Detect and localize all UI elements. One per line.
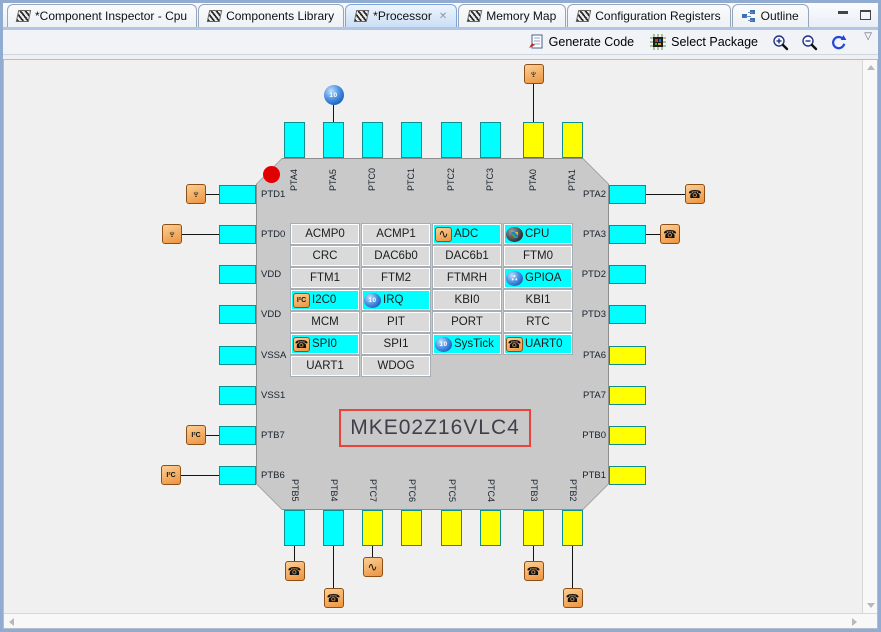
scroll-right-icon[interactable] — [852, 618, 857, 626]
tab-label: Memory Map — [486, 9, 556, 23]
component-icon — [207, 10, 223, 22]
component-icon — [16, 10, 32, 22]
uart-icon[interactable]: ☎ — [660, 224, 680, 244]
peripheral-acmp0[interactable]: ACMP0 — [291, 224, 359, 244]
pin-vdd-left[interactable] — [219, 265, 256, 284]
zoom-in-icon — [772, 34, 789, 51]
pin-label: PTA0 — [527, 161, 540, 191]
pin-wire — [182, 234, 219, 235]
pin-ptc5-bottom[interactable] — [441, 510, 462, 546]
pin-ptd2-right[interactable] — [609, 265, 646, 284]
pin-wire — [533, 84, 534, 122]
peripheral-label: UART0 — [525, 338, 563, 350]
vertical-scrollbar[interactable] — [862, 60, 877, 613]
peripheral-rtc[interactable]: RTC — [504, 312, 572, 332]
pin-ptb2-bottom[interactable] — [562, 510, 583, 546]
uart-icon: ☎ — [293, 337, 310, 352]
pin-ptd3-right[interactable] — [609, 305, 646, 324]
peripheral-kbi1[interactable]: KBI1 — [504, 290, 572, 310]
select-package-button[interactable]: Select Package — [647, 32, 761, 52]
peripheral-label: SysTick — [454, 338, 494, 350]
peripheral-spi1[interactable]: SPI1 — [362, 334, 430, 354]
peripheral-kbi0[interactable]: KBI0 — [433, 290, 501, 310]
tab-strip: *Component Inspector - CpuComponents Lib… — [7, 3, 826, 27]
peripheral-acmp1[interactable]: ACMP1 — [362, 224, 430, 244]
peripheral-mcm[interactable]: MCM — [291, 312, 359, 332]
peripheral-label: PIT — [387, 316, 405, 328]
component-icon — [576, 10, 592, 22]
pin-ptc2-top[interactable] — [441, 122, 462, 158]
pin-pta0-top[interactable] — [523, 122, 544, 158]
pin-ptb7-left[interactable] — [219, 426, 256, 445]
pin-vssa-left[interactable] — [219, 346, 256, 365]
scroll-up-icon[interactable] — [867, 65, 875, 70]
toolbar-overflow-chevron[interactable]: ▽ — [864, 32, 872, 42]
peripheral-label: SPI0 — [312, 338, 337, 350]
editor-tabbar: *Component Inspector - CpuComponents Lib… — [3, 3, 878, 30]
pin-label: PTC3 — [484, 161, 497, 191]
peripheral-ftm0[interactable]: FTM0 — [504, 246, 572, 266]
pin-label: PTA4 — [288, 161, 301, 191]
scroll-left-icon[interactable] — [9, 618, 14, 626]
processor-toolbar: Generate Code Select Package — [3, 30, 878, 55]
peripheral-adc[interactable]: ∿ADC — [433, 224, 501, 244]
gpio-icon[interactable]: ♆ — [186, 184, 206, 204]
diagram-view: MKE02Z16VLC4 PTA4PTA510PTC0PTC1PTC2PTC3P… — [3, 59, 878, 629]
pin-pta1-top[interactable] — [562, 122, 583, 158]
pin-label: PTB3 — [527, 479, 540, 509]
peripheral-label: WDOG — [377, 360, 414, 372]
peripheral-label: FTM0 — [523, 250, 553, 262]
pin-label: PTD1 — [261, 188, 307, 201]
peripheral-label: MCM — [311, 316, 338, 328]
adc-icon: ∿ — [435, 227, 452, 242]
peripheral-wdog[interactable]: WDOG — [362, 356, 430, 376]
pin-label: PTC4 — [484, 479, 497, 509]
uart-icon[interactable]: ☎ — [524, 561, 544, 581]
peripheral-port[interactable]: PORT — [433, 312, 501, 332]
peripheral-label: ADC — [454, 228, 478, 240]
peripheral-irq[interactable]: 10IRQ — [362, 290, 430, 310]
chip-name-box: MKE02Z16VLC4 — [339, 409, 531, 447]
tab-memory-map[interactable]: Memory Map — [458, 4, 566, 27]
peripheral-systick[interactable]: 10SysTick — [433, 334, 501, 354]
gpioa-icon: ∴ — [506, 271, 523, 286]
pin-pta4-top[interactable] — [284, 122, 305, 158]
pin-label: PTC0 — [366, 161, 379, 191]
peripheral-label: FTMRH — [447, 272, 487, 284]
pin-wire — [646, 234, 660, 235]
peripheral-label: CPU — [525, 228, 549, 240]
pin-label: PTB5 — [288, 479, 301, 509]
peripheral-label: FTM2 — [381, 272, 411, 284]
pin-ptc7-bottom[interactable] — [362, 510, 383, 546]
generate-code-button[interactable]: Generate Code — [525, 32, 637, 52]
peripheral-dac6b0[interactable]: DAC6b0 — [362, 246, 430, 266]
pin-vss1-left[interactable] — [219, 386, 256, 405]
adc-icon[interactable]: ∿ — [363, 557, 383, 577]
pin-label: PTB0 — [560, 429, 606, 442]
pin-label: PTB4 — [327, 479, 340, 509]
pin-ptb0-right[interactable] — [609, 426, 646, 445]
peripheral-crc[interactable]: CRC — [291, 246, 359, 266]
tab-label: Components Library — [226, 9, 334, 23]
pin-label: PTC2 — [445, 161, 458, 191]
refresh-icon — [830, 34, 847, 51]
tab-label: *Processor — [373, 9, 432, 23]
close-icon[interactable]: ✕ — [439, 11, 447, 22]
pin-ptc1-top[interactable] — [401, 122, 422, 158]
peripheral-label: GPIOA — [525, 272, 561, 284]
view-controls — [826, 10, 878, 27]
pin-vdd-left[interactable] — [219, 305, 256, 324]
peripheral-uart0[interactable]: ☎UART0 — [504, 334, 572, 354]
peripheral-gpioa[interactable]: ∴GPIOA — [504, 268, 572, 288]
peripheral-label: RTC — [526, 316, 549, 328]
pin-wire — [294, 546, 295, 561]
tab-components-library[interactable]: Components Library — [198, 4, 344, 27]
peripheral-label: CRC — [313, 250, 338, 262]
i2c-icon: I²C — [293, 293, 310, 308]
peripheral-label: ACMP1 — [376, 228, 416, 240]
pin-pta5-top[interactable] — [323, 122, 344, 158]
maximize-icon — [860, 10, 871, 20]
tab-label: Outline — [761, 9, 799, 23]
pin-ptc0-top[interactable] — [362, 122, 383, 158]
peripheral-ftmrh[interactable]: FTMRH — [433, 268, 501, 288]
pin-ptc3-top[interactable] — [480, 122, 501, 158]
peripheral-i2c0[interactable]: I²CI2C0 — [291, 290, 359, 310]
uart-icon[interactable]: ☎ — [285, 561, 305, 581]
peripheral-label: KBI1 — [526, 294, 551, 306]
pin-label: PTB7 — [261, 429, 307, 442]
pin-ptb4-bottom[interactable] — [323, 510, 344, 546]
cpu-icon — [506, 227, 523, 242]
irq-icon: 10 — [364, 293, 381, 308]
pin-label: PTC1 — [405, 161, 418, 191]
peripheral-pit[interactable]: PIT — [362, 312, 430, 332]
pin-wire — [572, 546, 573, 588]
peripheral-cpu[interactable]: CPU — [504, 224, 572, 244]
minimize-button[interactable] — [836, 10, 850, 23]
pin-wire — [206, 194, 219, 195]
pin-pta3-right[interactable] — [609, 225, 646, 244]
pin-wire — [181, 475, 219, 476]
pin-wire — [333, 105, 334, 122]
peripheral-label: PORT — [451, 316, 483, 328]
peripheral-label: DAC6b1 — [445, 250, 488, 262]
pin-label: PTA2 — [560, 188, 606, 201]
pin-ptb5-bottom[interactable] — [284, 510, 305, 546]
component-icon — [354, 10, 370, 22]
pin-ptc6-bottom[interactable] — [401, 510, 422, 546]
package-diagram-canvas[interactable]: MKE02Z16VLC4 PTA4PTA510PTC0PTC1PTC2PTC3P… — [4, 60, 862, 613]
chip-name: MKE02Z16VLC4 — [350, 416, 520, 440]
zoom-out-icon — [801, 34, 818, 51]
pin-label: PTB2 — [566, 479, 579, 509]
peripheral-uart1[interactable]: UART1 — [291, 356, 359, 376]
pin-ptd0-left[interactable] — [219, 225, 256, 244]
pin-wire — [206, 435, 219, 436]
minimize-icon — [838, 11, 848, 14]
pin-wire — [333, 546, 334, 588]
gpio-icon[interactable]: ♆ — [162, 224, 182, 244]
select-package-icon — [650, 34, 666, 50]
gpio-icon[interactable]: ♆ — [524, 64, 544, 84]
tab-label: Configuration Registers — [595, 9, 720, 23]
zoom-in-button[interactable] — [771, 33, 790, 52]
pin-wire — [646, 194, 685, 195]
pin-ptb6-left[interactable] — [219, 466, 256, 485]
pin-wire — [533, 546, 534, 561]
pin-ptb1-right[interactable] — [609, 466, 646, 485]
outline-icon — [742, 10, 756, 23]
tab-configuration-registers[interactable]: Configuration Registers — [567, 4, 730, 27]
uart-icon[interactable]: ☎ — [685, 184, 705, 204]
tab-label: *Component Inspector - Cpu — [35, 9, 187, 23]
pin-label: PTA7 — [560, 389, 606, 402]
tab-processor[interactable]: *Processor✕ — [345, 4, 457, 27]
tab-outline[interactable]: Outline — [732, 4, 809, 27]
pin-ptb3-bottom[interactable] — [523, 510, 544, 546]
peripheral-label: SPI1 — [384, 338, 409, 350]
pin1-marker-dot — [263, 166, 280, 183]
pin-label: PTB1 — [560, 469, 606, 482]
pin-ptc4-bottom[interactable] — [480, 510, 501, 546]
irq-icon[interactable]: 10 — [324, 85, 344, 105]
peripheral-label: ACMP0 — [305, 228, 345, 240]
peripheral-label: IRQ — [383, 294, 403, 306]
horizontal-scrollbar[interactable] — [4, 613, 877, 628]
pin-pta6-right[interactable] — [609, 346, 646, 365]
peripheral-ftm1[interactable]: FTM1 — [291, 268, 359, 288]
maximize-button[interactable] — [858, 10, 872, 23]
peripheral-label: KBI0 — [455, 294, 480, 306]
processor-expert-window: *Component Inspector - CpuComponents Lib… — [0, 0, 881, 632]
i2c-icon[interactable]: I²C — [161, 465, 181, 485]
i2c-icon[interactable]: I²C — [186, 425, 206, 445]
peripheral-label: FTM1 — [310, 272, 340, 284]
pin-label: PTC6 — [405, 479, 418, 509]
scroll-down-icon[interactable] — [867, 603, 875, 608]
pin-label: PTA5 — [327, 161, 340, 191]
uart-icon: ☎ — [506, 337, 523, 352]
pin-wire — [372, 546, 373, 557]
pin-ptd1-left[interactable] — [219, 185, 256, 204]
peripheral-spi0[interactable]: ☎SPI0 — [291, 334, 359, 354]
peripheral-label: UART1 — [306, 360, 344, 372]
pin-label: PTB6 — [261, 469, 307, 482]
uart-icon[interactable]: ☎ — [563, 588, 583, 608]
pin-label: PTC7 — [366, 479, 379, 509]
zoom-out-button[interactable] — [800, 33, 819, 52]
generate-code-label: Generate Code — [549, 35, 634, 49]
tab-component-inspector-cpu[interactable]: *Component Inspector - Cpu — [7, 4, 197, 27]
uart-icon[interactable]: ☎ — [324, 588, 344, 608]
pin-label: PTA1 — [566, 161, 579, 191]
irq-icon: 10 — [435, 337, 452, 352]
peripheral-label: I2C0 — [312, 294, 336, 306]
peripheral-dac6b1[interactable]: DAC6b1 — [433, 246, 501, 266]
peripheral-ftm2[interactable]: FTM2 — [362, 268, 430, 288]
component-icon — [467, 10, 483, 22]
generate-code-icon — [528, 34, 544, 50]
pin-label: PTC5 — [445, 479, 458, 509]
pin-pta2-right[interactable] — [609, 185, 646, 204]
pin-label: VSS1 — [261, 389, 307, 402]
refresh-button[interactable] — [829, 33, 848, 52]
pin-pta7-right[interactable] — [609, 386, 646, 405]
peripheral-label: DAC6b0 — [374, 250, 417, 262]
select-package-label: Select Package — [671, 35, 758, 49]
